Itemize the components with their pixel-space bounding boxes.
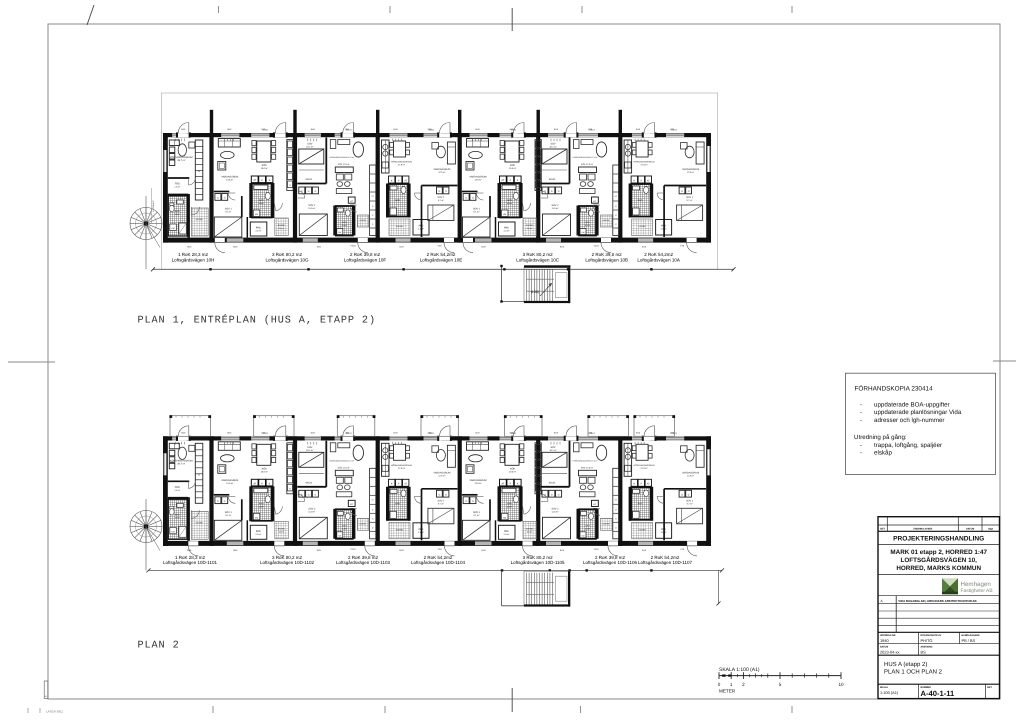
svg-text:BAD: BAD (395, 502, 400, 505)
svg-text:KÖK: KÖK (510, 467, 515, 470)
svg-text:HÖRNVARDAGSRUM 27.8 m²: HÖRNVARDAGSRUM 27.8 m² (573, 156, 598, 159)
svg-text:13.9 m²: 13.9 m² (474, 179, 481, 182)
svg-text:G: G (465, 197, 467, 200)
svg-text:G: G (445, 190, 447, 193)
svg-text:4.2m²: 4.2m² (342, 527, 347, 530)
svg-text:2023-04-xx: 2023-04-xx (880, 650, 900, 655)
svg-text:1 RoK 28,3 m2: 1 RoK 28,3 m2 (175, 555, 206, 560)
svg-text:12.9 m²: 12.9 m² (687, 171, 694, 174)
svg-text:BAD: BAD (585, 524, 590, 527)
svg-text:10.0 m²: 10.0 m² (261, 167, 268, 170)
svg-text:10x21: 10x21 (346, 129, 353, 132)
svg-text:HÖRNVARDAGSRUM 27.8 m²: HÖRNVARDAGSRUM 27.8 m² (329, 156, 354, 159)
svg-text:ENTRE: ENTRE (603, 522, 610, 525)
svg-text:11.0 m²: 11.0 m² (552, 207, 559, 210)
svg-text:VARDAGSRUM: VARDAGSRUM (682, 168, 699, 171)
svg-text:5: 5 (779, 682, 782, 687)
svg-text:3 RoK 80,2 m2: 3 RoK 80,2 m2 (523, 555, 554, 560)
svg-text:SKUG: SKUG (306, 481, 313, 484)
svg-text:PROJEKTERINGSHANDLING: PROJEKTERINGSHANDLING (893, 536, 984, 543)
svg-text:10x21: 10x21 (511, 129, 518, 132)
svg-text:3 RoK 80,2 m2: 3 RoK 80,2 m2 (272, 555, 303, 560)
svg-text:KM: KM (255, 213, 258, 216)
svg-text:G: G (439, 494, 441, 497)
svg-text:ENTRE: ENTRE (278, 527, 285, 530)
svg-text:BAD: BAD (395, 199, 400, 202)
svg-text:0: 0 (718, 682, 721, 687)
svg-text:2: 2 (742, 682, 745, 687)
svg-text:10.1 m²: 10.1 m² (549, 146, 556, 149)
svg-text:KÖK: KÖK (510, 164, 515, 167)
svg-text:2.0 m²: 2.0 m² (255, 533, 261, 536)
svg-text:METER: METER (719, 688, 736, 693)
svg-text:10.1 m²: 10.1 m² (306, 146, 313, 149)
svg-text:2 RoK 54,2m2: 2 RoK 54,2m2 (427, 252, 456, 257)
svg-text:BET: BET (987, 686, 992, 689)
svg-text:FÖRHANDSKOPIA 230414: FÖRHANDSKOPIA 230414 (855, 385, 934, 393)
svg-text:3.9m²: 3.9m² (175, 516, 180, 519)
svg-text:PB / BS: PB / BS (962, 638, 976, 643)
svg-text:2 RoK 39,8 m2: 2 RoK 39,8 m2 (592, 252, 623, 257)
svg-text:Hemhagen: Hemhagen (961, 581, 992, 588)
svg-text:PLAN 1 OCH PLAN 2: PLAN 1 OCH PLAN 2 (884, 669, 943, 676)
svg-text:13.9 m²: 13.9 m² (474, 482, 481, 485)
svg-text:FRD: FRD (504, 530, 509, 533)
svg-text:10.0 m²: 10.0 m² (509, 167, 516, 170)
svg-text:HÖRNVARDAGSRUM: HÖRNVARDAGSRUM (391, 464, 412, 467)
svg-text:ENTRE: ENTRE (360, 522, 367, 525)
svg-text:3.9m²: 3.9m² (175, 213, 180, 216)
svg-text:9.7 m²: 9.7 m² (438, 199, 444, 202)
svg-text:4.9m²: 4.9m² (259, 202, 264, 205)
svg-text:G: G (681, 190, 683, 193)
svg-text:FRD: FRD (175, 183, 180, 186)
svg-text:G: G (558, 190, 560, 193)
svg-text:A-40-1-11: A-40-1-11 (921, 689, 956, 698)
svg-text:BAD: BAD (175, 513, 180, 516)
svg-text:1940: 1940 (880, 638, 889, 643)
svg-text:28.7 m²: 28.7 m² (177, 159, 185, 162)
svg-text:9.1 m²: 9.1 m² (225, 211, 231, 214)
svg-text:12.9 m²: 12.9 m² (687, 474, 694, 477)
svg-text:DATUM: DATUM (880, 646, 888, 649)
svg-text:BAD: BAD (507, 199, 512, 202)
svg-text:13.9 m²: 13.9 m² (226, 179, 233, 182)
svg-text:SOV 2: SOV 2 (308, 204, 316, 207)
svg-text:11.0 m²: 11.0 m² (552, 510, 559, 513)
svg-text:11.0 m²: 11.0 m² (308, 207, 315, 210)
svg-text:BAD: BAD (259, 502, 264, 505)
svg-text:3.5 m²: 3.5 m² (279, 530, 285, 533)
svg-text:KM: KM (171, 227, 174, 230)
svg-text:Loftsgårdsvägen 10D-1106: Loftsgårdsvägen 10D-1106 (583, 560, 637, 565)
svg-text:ÄNDRING AVSER: ÄNDRING AVSER (913, 528, 932, 531)
svg-text:SKUG: SKUG (306, 178, 313, 181)
svg-text:ENTRE: ENTRE (396, 528, 404, 531)
svg-text:Y210: Y210 (593, 245, 599, 248)
svg-text:BET: BET (880, 528, 885, 531)
svg-text:Loftsgårdsvägen 10E: Loftsgårdsvägen 10E (420, 258, 463, 263)
svg-text:G: G (537, 487, 539, 490)
svg-text:KÖK 17.0 m²: KÖK 17.0 m² (581, 163, 593, 166)
svg-text:SOV 1: SOV 1 (225, 511, 233, 514)
svg-text:SOV 1: SOV 1 (225, 208, 233, 211)
svg-text:28.7 m²: 28.7 m² (177, 462, 185, 465)
svg-text:SKUG: SKUG (549, 178, 556, 181)
svg-text:VARDAGSRUM: VARDAGSRUM (682, 471, 699, 474)
svg-text:ENTRE: ENTRE (196, 218, 204, 221)
svg-text:SKALA 1:100 (A1): SKALA 1:100 (A1) (719, 667, 760, 673)
svg-text:Loftsgårdsvägen 10D-1107: Loftsgårdsvägen 10D-1107 (638, 560, 692, 565)
svg-text:VARDAGSRUM: VARDAGSRUM (470, 176, 487, 179)
svg-text:BAD: BAD (342, 524, 347, 527)
svg-text:10x21: 10x21 (671, 129, 678, 132)
svg-text:FRD: FRD (256, 227, 261, 230)
svg-text:9.1 m²: 9.1 m² (225, 514, 231, 517)
svg-text:10: 10 (838, 682, 844, 687)
svg-text:4.2m²: 4.2m² (585, 527, 590, 530)
svg-text:SOV 2: SOV 2 (308, 507, 316, 510)
svg-text:10.1 m²: 10.1 m² (549, 449, 556, 452)
svg-text:3.5 m²: 3.5 m² (279, 227, 285, 230)
svg-text:ENTRE: ENTRE (360, 219, 367, 222)
svg-text:2 RoK 39,8 m2: 2 RoK 39,8 m2 (348, 555, 379, 560)
svg-text:G: G (465, 500, 467, 503)
svg-text:2 RoK 39,8 m2: 2 RoK 39,8 m2 (350, 252, 381, 257)
svg-text:VIDA BUILDING AB | ARKONARK AR: VIDA BUILDING AB | ARKONARK ARKITEKTKONT… (898, 599, 976, 603)
svg-text:HÖRNVARDAGSRUM: HÖRNVARDAGSRUM (634, 161, 655, 164)
svg-text:BAD: BAD (585, 221, 590, 224)
svg-text:KM: KM (503, 213, 506, 216)
svg-text:SOV 1: SOV 1 (473, 208, 481, 211)
svg-text:1 RoK 28,3 m2: 1 RoK 28,3 m2 (178, 252, 209, 257)
svg-text:PH/TG: PH/TG (921, 638, 933, 643)
svg-text:PLAN 1, ENTRÉPLAN (HUS A, ETAP: PLAN 1, ENTRÉPLAN (HUS A, ETAPP 2) (138, 314, 376, 327)
svg-text:BAD: BAD (638, 199, 643, 202)
svg-text:1: 1 (730, 682, 733, 687)
svg-text:BAD: BAD (342, 221, 347, 224)
svg-text:SOV: SOV (550, 143, 555, 146)
svg-text:Loftsgårdsvägen 10D-1101: Loftsgårdsvägen 10D-1101 (163, 560, 217, 565)
svg-text:(10D): (10D) (531, 290, 539, 294)
svg-text:LASER 5811: LASER 5811 (46, 710, 63, 714)
svg-text:10x21: 10x21 (511, 432, 518, 435)
svg-text:adresser och lgh-nummer: adresser och lgh-nummer (874, 417, 945, 424)
svg-text:KM: KM (255, 516, 258, 519)
svg-text:ENTRE: ENTRE (639, 225, 647, 228)
svg-text:G: G (224, 500, 226, 503)
svg-text:27.8 m²: 27.8 m² (641, 467, 648, 470)
svg-text:KÖK 17.0 m²: KÖK 17.0 m² (338, 163, 350, 166)
svg-text:KM: KM (582, 231, 585, 234)
svg-text:-: - (860, 450, 862, 457)
svg-text:KÖK: KÖK (262, 467, 267, 470)
svg-text:SOV 1: SOV 1 (437, 499, 445, 502)
svg-text:G: G (308, 494, 310, 497)
svg-text:10.0 m²: 10.0 m² (261, 470, 268, 473)
svg-text:-: - (860, 402, 862, 409)
svg-text:BAD: BAD (175, 210, 180, 213)
svg-text:13.9 m²: 13.9 m² (226, 482, 233, 485)
svg-text:27.8 m²: 27.8 m² (641, 164, 648, 167)
svg-text:11.0 m²: 11.0 m² (308, 510, 315, 513)
svg-text:9.1 m²: 9.1 m² (474, 211, 480, 214)
svg-text:2 RoK 54,2m2: 2 RoK 54,2m2 (651, 555, 680, 560)
svg-text:9.1 m²: 9.1 m² (474, 514, 480, 517)
svg-text:-: - (860, 417, 862, 424)
svg-text:HUS A (etapp 2): HUS A (etapp 2) (884, 661, 927, 668)
svg-text:HORRED, MARKS KOMMUN: HORRED, MARKS KOMMUN (896, 565, 981, 572)
svg-text:KM: KM (338, 231, 341, 234)
svg-text:trappa, loftgång, spaljéer: trappa, loftgång, spaljéer (874, 442, 942, 449)
svg-text:KÖK 17.0 m²: KÖK 17.0 m² (338, 466, 350, 469)
svg-text:LOFTSGÅRDSVÄGEN 10,: LOFTSGÅRDSVÄGEN 10, (901, 556, 978, 564)
svg-text:ENTRE: ENTRE (603, 219, 610, 222)
svg-text:KM: KM (503, 516, 506, 519)
svg-text:10x21: 10x21 (429, 129, 436, 132)
svg-text:VARDAGSRUM: VARDAGSRUM (470, 479, 487, 482)
svg-text:9.7 m²: 9.7 m² (687, 199, 693, 202)
svg-text:Loftsgårdsvägen 10C: Loftsgårdsvägen 10C (516, 258, 560, 263)
svg-text:-: - (860, 442, 862, 449)
svg-text:SOV 1: SOV 1 (437, 196, 445, 199)
svg-text:G: G (315, 494, 317, 497)
svg-text:G: G (198, 170, 200, 173)
svg-text:12.9 m²: 12.9 m² (438, 474, 445, 477)
svg-text:SOV 1: SOV 1 (686, 196, 694, 199)
svg-text:10x21: 10x21 (262, 432, 269, 435)
svg-text:VARDAGSRUM: VARDAGSRUM (433, 168, 450, 171)
svg-text:G: G (217, 500, 219, 503)
svg-text:ENTRE: ENTRE (278, 224, 285, 227)
svg-text:BAD: BAD (638, 502, 643, 505)
svg-text:e 3 trede h: e 3 trede h (152, 200, 155, 212)
svg-text:KÖK 17.0 m²: KÖK 17.0 m² (581, 466, 593, 469)
svg-text:12.9 m²: 12.9 m² (438, 171, 445, 174)
svg-text:4.2m²: 4.2m² (342, 224, 347, 227)
svg-text:G: G (217, 197, 219, 200)
svg-text:G: G (289, 184, 291, 187)
svg-text:G: G (472, 197, 474, 200)
svg-text:Fastigheter AB: Fastigheter AB (961, 588, 993, 594)
svg-text:BAD: BAD (259, 199, 264, 202)
svg-text:1.5 m²: 1.5 m² (174, 186, 180, 189)
svg-text:Loftsgårdsvägen 10H: Loftsgårdsvägen 10H (172, 258, 215, 263)
svg-text:10x21: 10x21 (429, 432, 436, 435)
svg-text:VARDAGSRUM: VARDAGSRUM (433, 471, 450, 474)
svg-text:ENTRE: ENTRE (526, 224, 533, 227)
svg-text:G: G (688, 494, 690, 497)
svg-text:ENTRE: ENTRE (639, 528, 647, 531)
svg-text:G: G (551, 494, 553, 497)
svg-text:Loftsgårdsvägen 10D-1104: Loftsgårdsvägen 10D-1104 (411, 560, 465, 565)
svg-text:G: G (315, 190, 317, 193)
svg-text:uppdaterade BOA-uppgifter: uppdaterade BOA-uppgifter (874, 402, 950, 409)
svg-text:SOV 1: SOV 1 (473, 511, 481, 514)
svg-text:G: G (289, 487, 291, 490)
svg-text:10x21: 10x21 (346, 432, 353, 435)
svg-text:Y210: Y210 (350, 548, 356, 551)
svg-text:Loftsgårdsvägen 10D-1102: Loftsgårdsvägen 10D-1102 (260, 560, 314, 565)
svg-text:9.7 m²: 9.7 m² (687, 502, 693, 505)
svg-text:10.0 m²: 10.0 m² (509, 470, 516, 473)
svg-text:G: G (537, 184, 539, 187)
svg-text:KM: KM (338, 534, 341, 537)
svg-text:SOV: SOV (550, 446, 555, 449)
svg-text:2 RoK 39,8 m2: 2 RoK 39,8 m2 (595, 555, 626, 560)
svg-text:Y210: Y210 (593, 548, 599, 551)
svg-text:G: G (445, 494, 447, 497)
svg-text:KM: KM (582, 534, 585, 537)
svg-text:10x21: 10x21 (589, 129, 596, 132)
svg-text:SOV: SOV (307, 446, 312, 449)
svg-text:SOV 1: SOV 1 (686, 499, 694, 502)
svg-text:RITAD/KONSTR AV: RITAD/KONSTR AV (921, 634, 942, 637)
svg-text:UPPDRAG NR: UPPDRAG NR (880, 634, 896, 637)
svg-text:-: - (860, 409, 862, 416)
svg-text:HÖRNVARDAGSRUM 27.8 m²: HÖRNVARDAGSRUM 27.8 m² (573, 459, 598, 462)
svg-text:Y210: Y210 (350, 245, 356, 248)
svg-text:27.8 m²: 27.8 m² (398, 164, 405, 167)
svg-text:G: G (681, 494, 683, 497)
svg-text:3.5 m²: 3.5 m² (527, 227, 533, 230)
svg-text:G: G (472, 500, 474, 503)
svg-text:4.2m²: 4.2m² (585, 224, 590, 227)
svg-text:BS: BS (921, 650, 927, 655)
svg-text:BAD: BAD (507, 502, 512, 505)
svg-text:4.9m²: 4.9m² (507, 202, 512, 205)
svg-text:G: G (439, 190, 441, 193)
svg-text:SOV 2: SOV 2 (551, 204, 559, 207)
svg-text:HÖRNVARDAGSRUM 27.8 m²: HÖRNVARDAGSRUM 27.8 m² (329, 459, 354, 462)
svg-text:VARDAGSRUM: VARDAGSRUM (221, 176, 238, 179)
svg-text:9.7 m²: 9.7 m² (438, 502, 444, 505)
svg-text:Loftsgårdsvägen 10B: Loftsgårdsvägen 10B (585, 258, 628, 263)
svg-text:4.9m²: 4.9m² (259, 505, 264, 508)
svg-text:FRD: FRD (175, 486, 180, 489)
svg-text:Loftsgårdsvägen 10D-1103: Loftsgårdsvägen 10D-1103 (336, 560, 390, 565)
svg-text:Loftsgårdsvägen 10D-1105: Loftsgårdsvägen 10D-1105 (511, 560, 565, 565)
svg-text:uppdaterade planlösningar Vida: uppdaterade planlösningar Vida (874, 409, 962, 416)
svg-text:Loftsgårdsvägen 10A: Loftsgårdsvägen 10A (637, 258, 680, 263)
svg-text:FRD: FRD (504, 227, 509, 230)
svg-text:G: G (224, 197, 226, 200)
svg-text:Sign: Sign (988, 528, 994, 531)
svg-text:3.5 m²: 3.5 m² (527, 530, 533, 533)
svg-text:1:100 (A1): 1:100 (A1) (880, 690, 899, 695)
svg-text:2 RoK 54,2m2: 2 RoK 54,2m2 (644, 252, 673, 257)
svg-text:HANDLÄGGARE: HANDLÄGGARE (962, 634, 981, 637)
svg-text:3 RoK 80,2 m2: 3 RoK 80,2 m2 (523, 252, 554, 257)
svg-text:G: G (308, 190, 310, 193)
svg-text:SOV 2: SOV 2 (551, 507, 559, 510)
svg-text:Loftsgårdsvägen 10G: Loftsgårdsvägen 10G (265, 258, 309, 263)
svg-text:SKUG: SKUG (549, 481, 556, 484)
svg-text:4.9m²: 4.9m² (507, 505, 512, 508)
svg-text:10.1 m²: 10.1 m² (306, 449, 313, 452)
svg-text:ENTRE: ENTRE (396, 225, 404, 228)
svg-text:2 RoK 54,2m2: 2 RoK 54,2m2 (424, 555, 453, 560)
svg-text:MARK 01 etapp 2, HORRED 1:47: MARK 01 etapp 2, HORRED 1:47 (890, 549, 987, 556)
svg-text:3 RoK 80,2 m2: 3 RoK 80,2 m2 (272, 252, 303, 257)
svg-text:ANSVARIG: ANSVARIG (921, 646, 933, 649)
svg-text:SKALA: SKALA (880, 686, 888, 689)
svg-text:KÖK: KÖK (262, 164, 267, 167)
svg-text:10x21: 10x21 (262, 129, 269, 132)
svg-text:HÖRNVARDAGSRUM: HÖRNVARDAGSRUM (391, 161, 412, 164)
svg-text:G: G (198, 473, 200, 476)
svg-text:2.0 m²: 2.0 m² (255, 230, 261, 233)
svg-text:G: G (688, 190, 690, 193)
svg-text:G: G (558, 494, 560, 497)
svg-text:FRD: FRD (256, 530, 261, 533)
svg-text:ENTRE: ENTRE (526, 527, 533, 530)
svg-text:2.0 m²: 2.0 m² (504, 533, 510, 536)
svg-text:27.8 m²: 27.8 m² (398, 467, 405, 470)
svg-text:Utredning på gång:: Utredning på gång: (854, 434, 907, 441)
svg-text:PLAN 2: PLAN 2 (138, 641, 180, 652)
svg-text:ENTRE: ENTRE (196, 521, 204, 524)
svg-text:elskåp: elskåp (874, 450, 892, 457)
svg-text:10x21: 10x21 (589, 432, 596, 435)
svg-text:DATUM: DATUM (966, 528, 974, 531)
svg-text:2.0 m²: 2.0 m² (504, 230, 510, 233)
svg-text:KM: KM (171, 530, 174, 533)
svg-text:HÖRNVARDAGSRUM: HÖRNVARDAGSRUM (634, 464, 655, 467)
svg-text:Loftsgårdsvägen 10F: Loftsgårdsvägen 10F (344, 258, 387, 263)
svg-text:SOV: SOV (307, 143, 312, 146)
svg-text:1.5 m²: 1.5 m² (174, 489, 180, 492)
svg-text:G: G (551, 190, 553, 193)
svg-text:VARDAGSRUM: VARDAGSRUM (221, 479, 238, 482)
